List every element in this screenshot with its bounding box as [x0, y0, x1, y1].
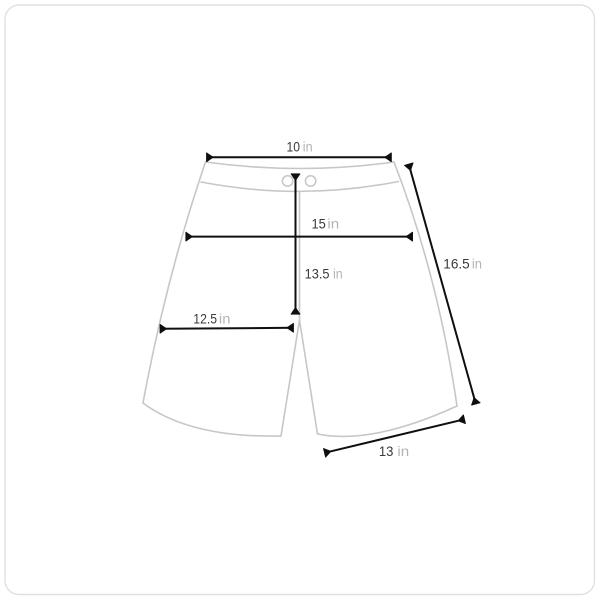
svg-text:10: 10	[287, 138, 301, 154]
svg-text:in: in	[327, 215, 339, 231]
svg-text:15: 15	[312, 215, 326, 231]
svg-text:in: in	[333, 266, 343, 282]
svg-text:in: in	[397, 443, 409, 459]
svg-text:in: in	[303, 138, 313, 154]
svg-text:16.5: 16.5	[443, 255, 470, 271]
svg-text:13: 13	[379, 443, 394, 459]
svg-text:in: in	[219, 311, 231, 327]
svg-text:12.5: 12.5	[193, 311, 217, 327]
svg-text:in: in	[472, 255, 482, 271]
svg-text:13.5: 13.5	[305, 266, 330, 282]
